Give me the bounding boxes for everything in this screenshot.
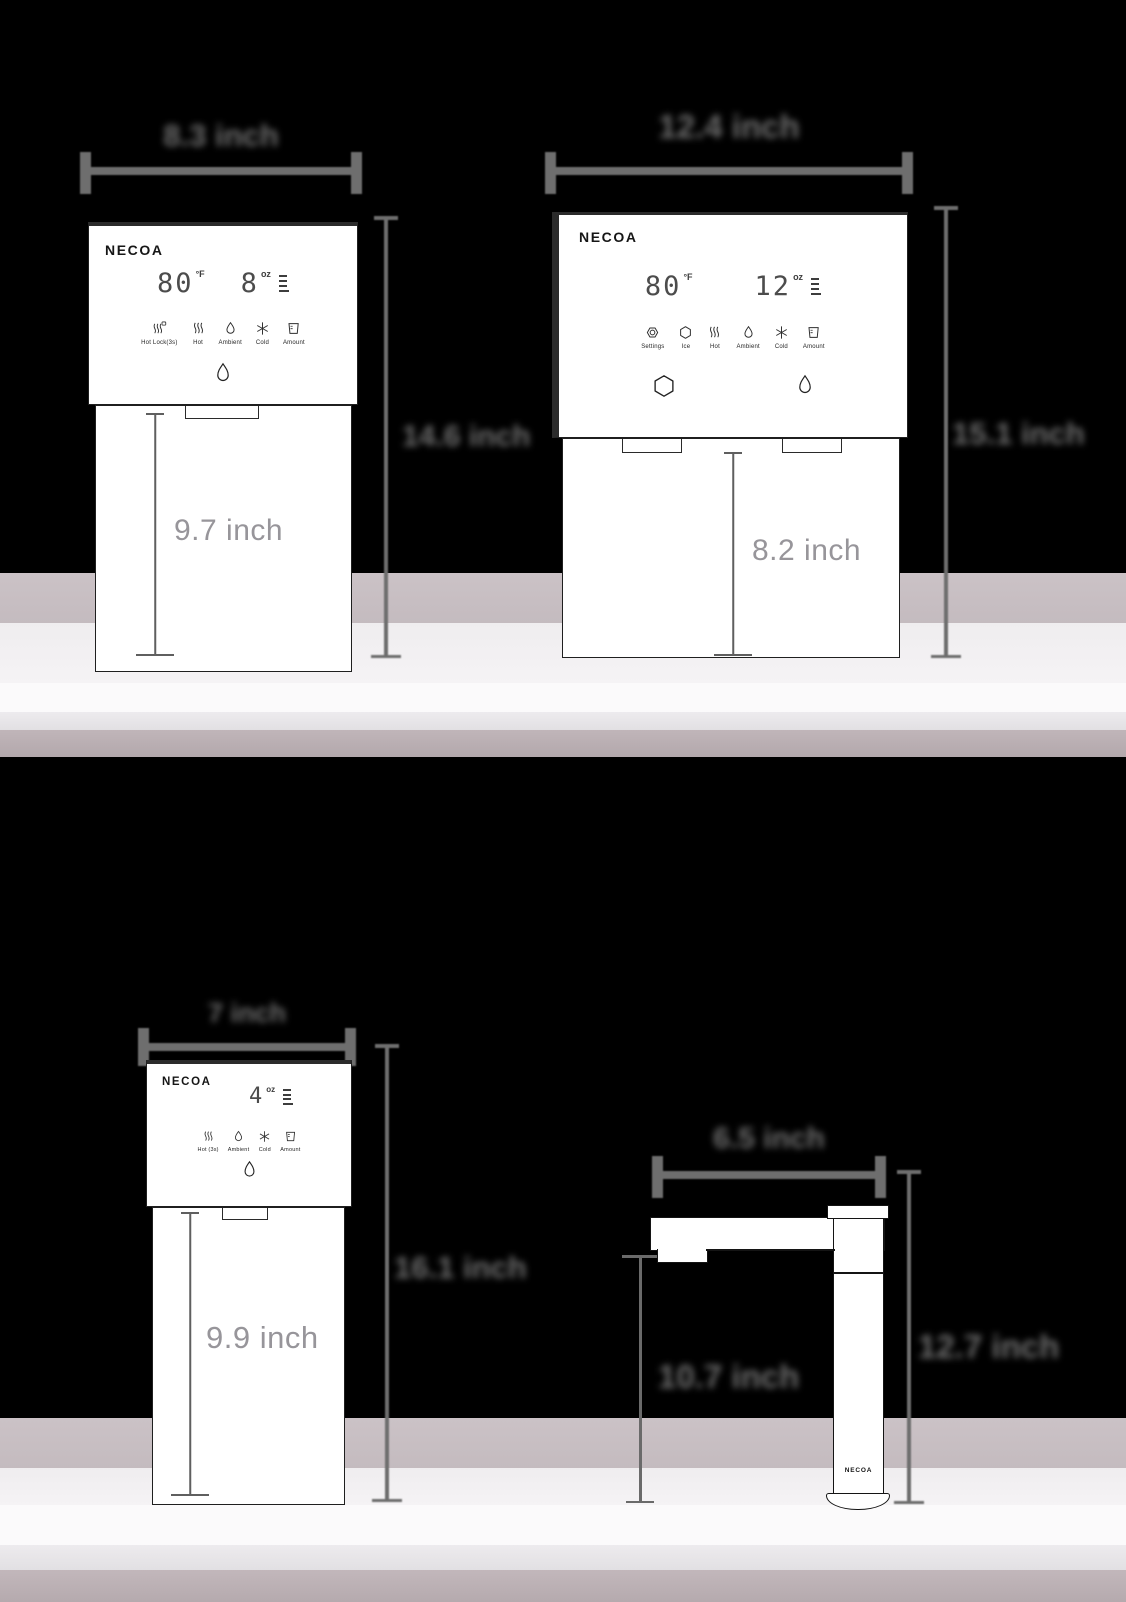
dispenser-c-body-height-label: 9.9 inch: [206, 1320, 319, 1356]
control-label: Cold: [256, 340, 269, 346]
control-label: Ice: [682, 344, 691, 350]
temperature-readout: 80°F: [645, 273, 693, 300]
dispenser-c-nozzle: [222, 1208, 268, 1220]
faucet-spout-outlet: [657, 1249, 708, 1263]
faucet-width-label: 6.5 inch: [652, 1122, 886, 1156]
dispenser-c-dispense-row: [147, 1160, 351, 1181]
dispense-water-button[interactable]: [241, 1160, 258, 1181]
dispenser-c-display: 4oz: [249, 1086, 293, 1108]
faucet-width-dimension-line: [652, 1156, 886, 1198]
temperature-unit: °F: [196, 269, 205, 279]
dispenser-c-touch-controls: Hot (3s) Ambient Cold Amount: [147, 1130, 351, 1153]
counter-band: [0, 712, 1126, 730]
dispenser-b-nozzle-left: [622, 439, 682, 453]
amount-value: 4: [249, 1086, 264, 1108]
dispenser-b-display: 80°F 12oz: [559, 273, 907, 300]
counter-band: [0, 1505, 1126, 1545]
counter-band: [0, 1570, 1126, 1602]
dispenser-c-height-label: 16.1 inch: [394, 1250, 527, 1286]
amount-unit: oz: [261, 269, 271, 279]
water-drop-icon: [223, 321, 238, 336]
hot-control[interactable]: Hot: [707, 325, 722, 350]
dispenser-a-body-height-line: [135, 413, 175, 656]
hot-control[interactable]: Hot (3s): [198, 1130, 219, 1153]
ambient-control[interactable]: Ambient: [228, 1130, 250, 1153]
measuring-cup-icon: [286, 321, 301, 336]
amount-control[interactable]: Amount: [803, 325, 825, 350]
amount-control[interactable]: Amount: [283, 321, 305, 346]
amount-control[interactable]: Amount: [280, 1130, 300, 1153]
level-indicator: [811, 278, 821, 295]
ice-hexagon-icon: [678, 325, 693, 340]
control-label: Cold: [775, 344, 788, 350]
dispenser-b-width-label: 12.4 inch: [545, 108, 913, 146]
dispenser-a-touch-controls: Hot Lock(3s) Hot Ambient Cold Amount: [89, 321, 357, 346]
brand-logo: NECOA: [105, 242, 164, 258]
faucet-top-cap: [827, 1205, 889, 1219]
control-label: Hot (3s): [198, 1147, 219, 1153]
dispense-water-button[interactable]: [213, 362, 233, 386]
hot-lock-control[interactable]: Hot Lock(3s): [141, 321, 177, 346]
counter-band: [0, 683, 1126, 712]
temperature-value: 80: [157, 270, 194, 297]
control-label: Amount: [283, 340, 305, 346]
amount-value: 8: [241, 270, 259, 297]
snowflake-icon: [258, 1130, 271, 1143]
ambient-control[interactable]: Ambient: [219, 321, 242, 346]
temperature-unit: °F: [683, 272, 692, 282]
dispenser-b-touch-controls: Settings Ice Hot Ambient Cold: [559, 325, 907, 350]
dispenser-b-control-panel: NECOA 80°F 12oz Settings Ice: [552, 212, 908, 438]
dispense-water-button[interactable]: [795, 374, 815, 398]
cold-control[interactable]: Cold: [774, 325, 789, 350]
ambient-control[interactable]: Ambient: [736, 325, 759, 350]
level-indicator: [279, 275, 289, 292]
hot-control[interactable]: Hot: [191, 321, 206, 346]
dispenser-a-display: 80°F 8oz: [89, 270, 357, 297]
dispenser-b-height-label: 15.1 inch: [952, 416, 1085, 452]
dispenser-a-width-dimension-line: [80, 152, 362, 194]
control-label: Hot: [193, 340, 203, 346]
dispenser-a-nozzle: [185, 406, 259, 419]
counter-band: [0, 730, 1126, 757]
dispenser-a-height-dimension-line: [371, 216, 401, 658]
faucet-underarm-line: [706, 1249, 835, 1251]
faucet-spout-height-line: [622, 1255, 658, 1503]
faucet-column-seam: [834, 1272, 883, 1274]
dispense-ice-button[interactable]: [651, 373, 677, 399]
hot-icon: [191, 321, 206, 336]
measuring-cup-icon: [806, 325, 821, 340]
water-drop-icon: [232, 1130, 245, 1143]
temperature-value: 80: [645, 273, 682, 300]
control-label: Ambient: [228, 1147, 250, 1153]
dispenser-b-body-height-label: 8.2 inch: [752, 534, 861, 568]
dispenser-c-body-height-line: [170, 1212, 210, 1496]
control-label: Settings: [641, 344, 664, 350]
hot-icon: [202, 1130, 215, 1143]
amount-readout: 8oz: [241, 270, 289, 297]
control-label: Hot: [710, 344, 720, 350]
brand-logo: NECOA: [579, 229, 638, 245]
amount-value: 12: [755, 273, 792, 300]
faucet-spout-height-label: 10.7 inch: [658, 1358, 799, 1396]
measuring-cup-icon: [284, 1130, 297, 1143]
control-label: Amount: [803, 344, 825, 350]
control-label: Amount: [280, 1147, 300, 1153]
dispenser-c-control-panel: NECOA 4oz Hot (3s) Ambient Cold: [146, 1060, 352, 1207]
settings-control[interactable]: Settings: [641, 325, 664, 350]
amount-unit: oz: [793, 272, 803, 282]
hot-lock-icon: [151, 321, 167, 336]
control-label: Ambient: [736, 344, 759, 350]
dispenser-a-control-panel: NECOA 80°F 8oz Hot Lock(3s) Hot: [88, 222, 358, 405]
cold-control[interactable]: Cold: [255, 321, 270, 346]
water-drop-icon: [741, 325, 756, 340]
control-label: Hot Lock(3s): [141, 340, 177, 346]
dispenser-b-body-height-line: [713, 452, 753, 656]
faucet-column: NECOA: [833, 1217, 884, 1501]
snowflake-icon: [255, 321, 270, 336]
brand-logo: NECOA: [834, 1467, 883, 1474]
dispenser-a-dispense-row: [89, 362, 357, 386]
dispenser-a-height-label: 14.6 inch: [402, 420, 530, 454]
brand-logo: NECOA: [162, 1076, 212, 1088]
temperature-readout: 80°F: [157, 270, 205, 297]
ice-control[interactable]: Ice: [678, 325, 693, 350]
dispenser-a-body-height-label: 9.7 inch: [174, 514, 283, 548]
amount-readout: 12oz: [755, 273, 822, 300]
hot-icon: [707, 325, 722, 340]
dispenser-b-nozzle-right: [782, 439, 842, 453]
snowflake-icon: [774, 325, 789, 340]
dispenser-b-dispense-row: [559, 373, 907, 399]
control-label: Cold: [259, 1147, 271, 1153]
gear-icon: [645, 325, 660, 340]
dispenser-c-width-label: 7 inch: [138, 998, 356, 1029]
cold-control[interactable]: Cold: [258, 1130, 271, 1153]
faucet-height-label: 12.7 inch: [918, 1328, 1059, 1366]
dispenser-b-width-dimension-line: [545, 152, 913, 194]
amount-unit: oz: [266, 1085, 275, 1094]
control-label: Ambient: [219, 340, 242, 346]
product-dimensions-infographic: 8.3 inch NECOA 80°F 8oz Hot Lock(3s): [0, 0, 1126, 1602]
level-indicator: [283, 1089, 293, 1105]
counter-band: [0, 1545, 1126, 1570]
dispenser-a-width-label: 8.3 inch: [80, 118, 362, 154]
